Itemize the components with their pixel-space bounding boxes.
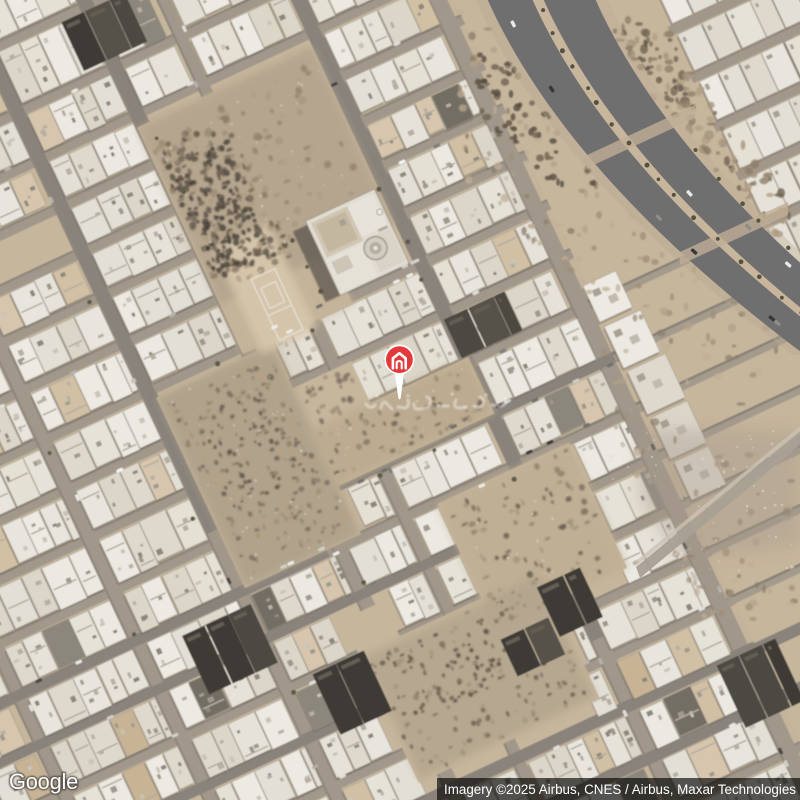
svg-text:Google: Google bbox=[9, 769, 78, 794]
svg-text:Imagery ©2025 Airbus, CNES / A: Imagery ©2025 Airbus, CNES / Airbus, Max… bbox=[444, 782, 796, 797]
